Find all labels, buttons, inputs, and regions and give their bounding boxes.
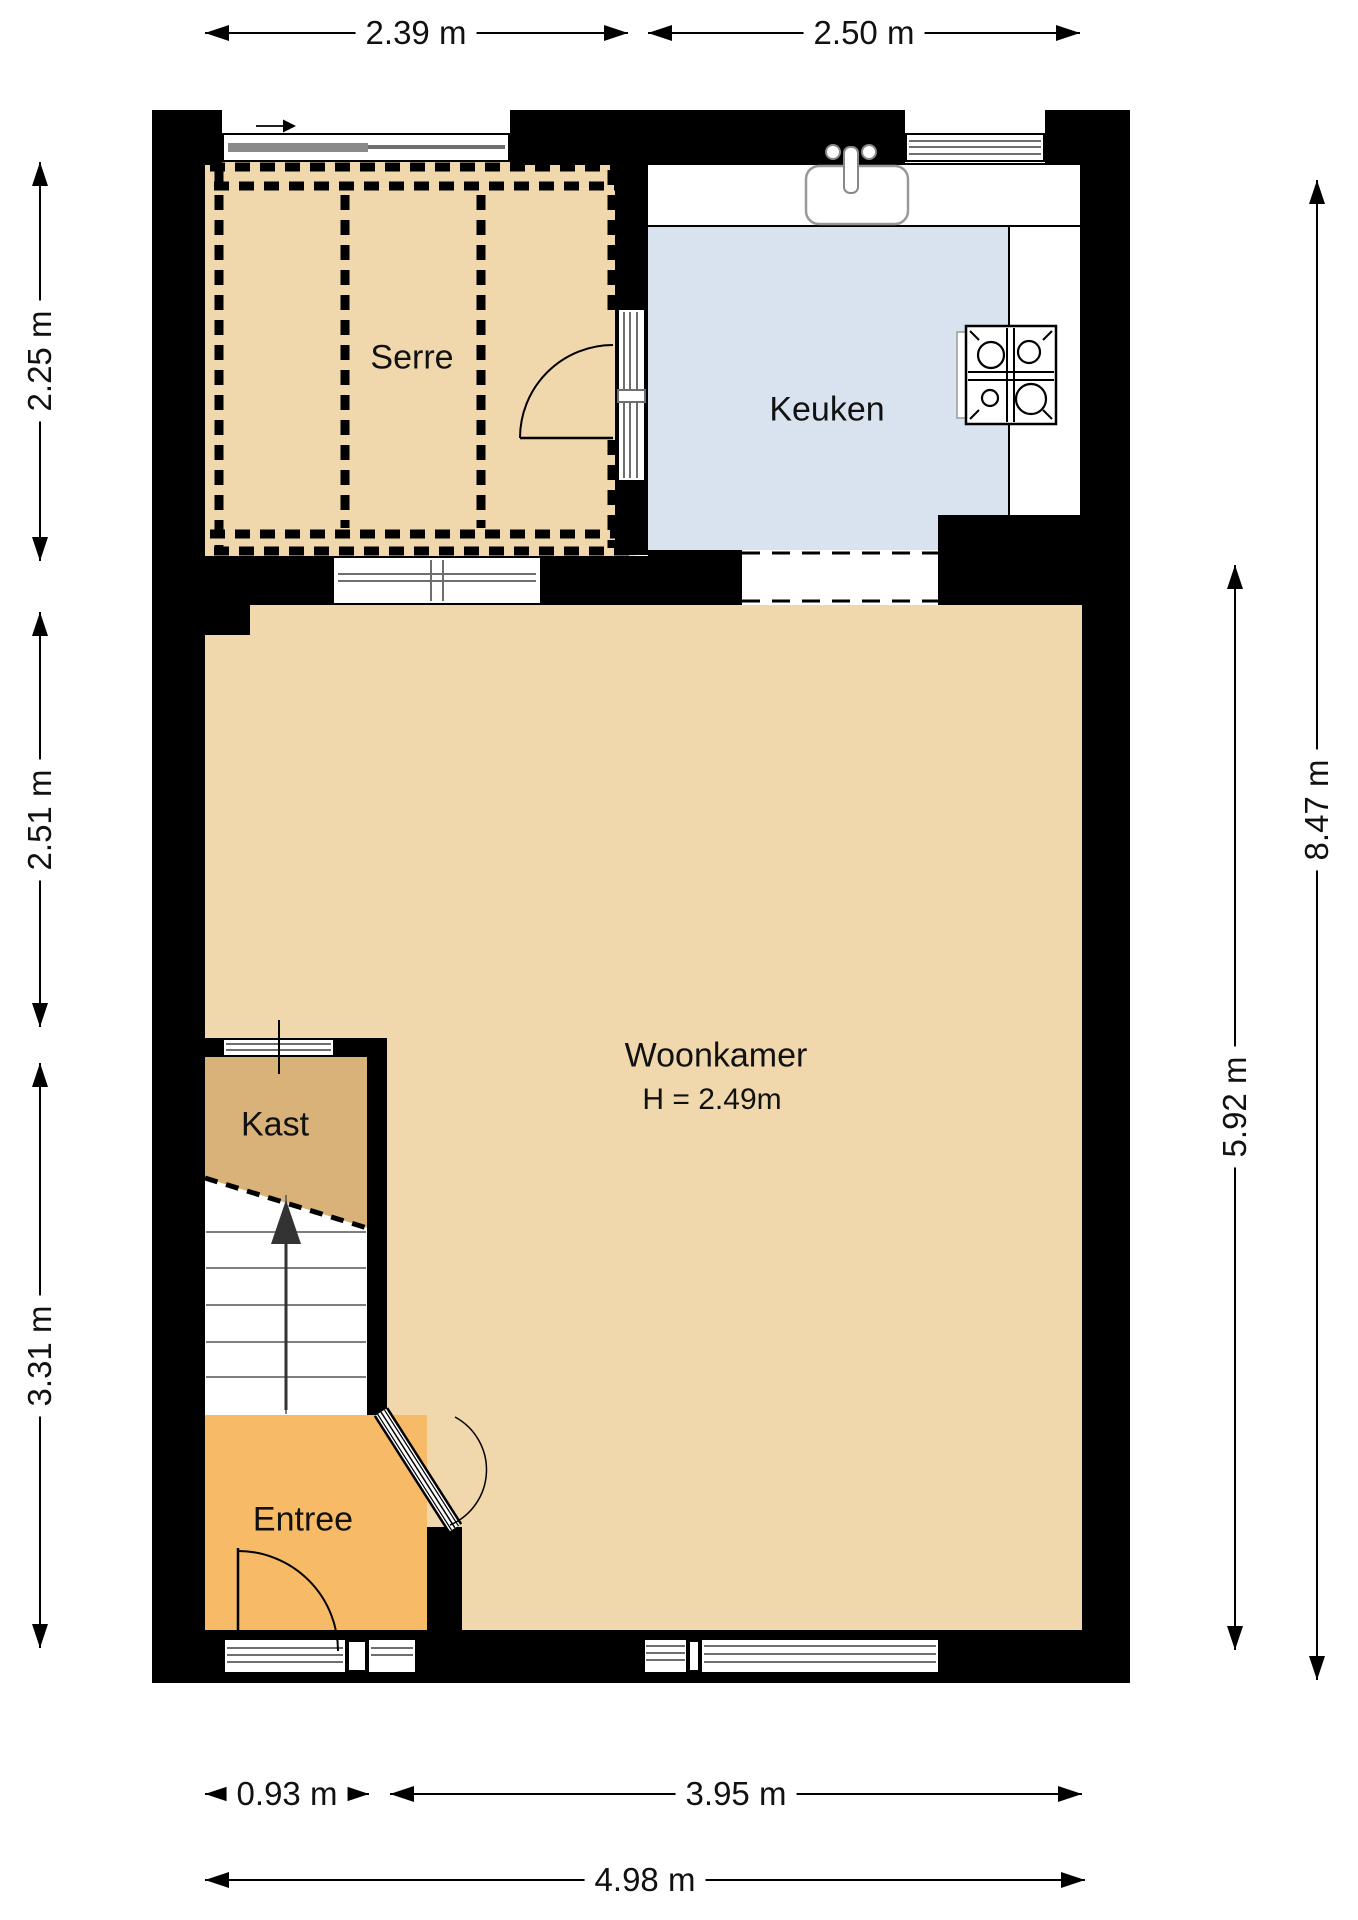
stove-icon <box>957 326 1056 424</box>
dimension-arrowheads <box>32 25 1325 1888</box>
dim-left-woonkamer-upper-depth: 2.51 m <box>20 760 60 881</box>
room-label-kast: Kast <box>241 1106 309 1145</box>
dimension-lines <box>40 33 1317 1880</box>
floorplan-canvas: Serre Keuken Woonkamer H = 2.49m Kast En… <box>0 0 1358 1920</box>
dim-bottom-woonkamer-width: 3.95 m <box>676 1774 797 1814</box>
dim-right-woonkamer-depth: 5.92 m <box>1215 1047 1255 1168</box>
entree-door <box>378 1410 487 1530</box>
dim-left-serre-depth: 2.25 m <box>20 301 60 422</box>
room-label-woonkamer: Woonkamer <box>625 1037 808 1076</box>
dim-bottom-total-width: 4.98 m <box>585 1860 706 1900</box>
dim-top-serre-width: 2.39 m <box>356 13 477 53</box>
dim-right-total-depth: 8.47 m <box>1297 750 1337 871</box>
dim-bottom-stairs-entree-width: 0.93 m <box>227 1774 348 1814</box>
room-label-serre: Serre <box>370 339 453 378</box>
room-label-keuken: Keuken <box>769 391 884 430</box>
front-door <box>238 1548 338 1651</box>
room-label-entree: Entree <box>253 1501 353 1540</box>
dim-left-lower-section-depth: 3.31 m <box>20 1296 60 1417</box>
north-arrow-icon <box>256 120 296 133</box>
serre-door <box>520 345 613 438</box>
dim-top-keuken-width: 2.50 m <box>804 13 925 53</box>
window-frame-lines <box>226 141 1041 1662</box>
sink-icon <box>806 145 908 224</box>
room-label-woonkamer-height: H = 2.49m <box>642 1083 781 1117</box>
plan-linework <box>0 0 1358 1920</box>
opening-dashed-lines <box>742 553 938 601</box>
